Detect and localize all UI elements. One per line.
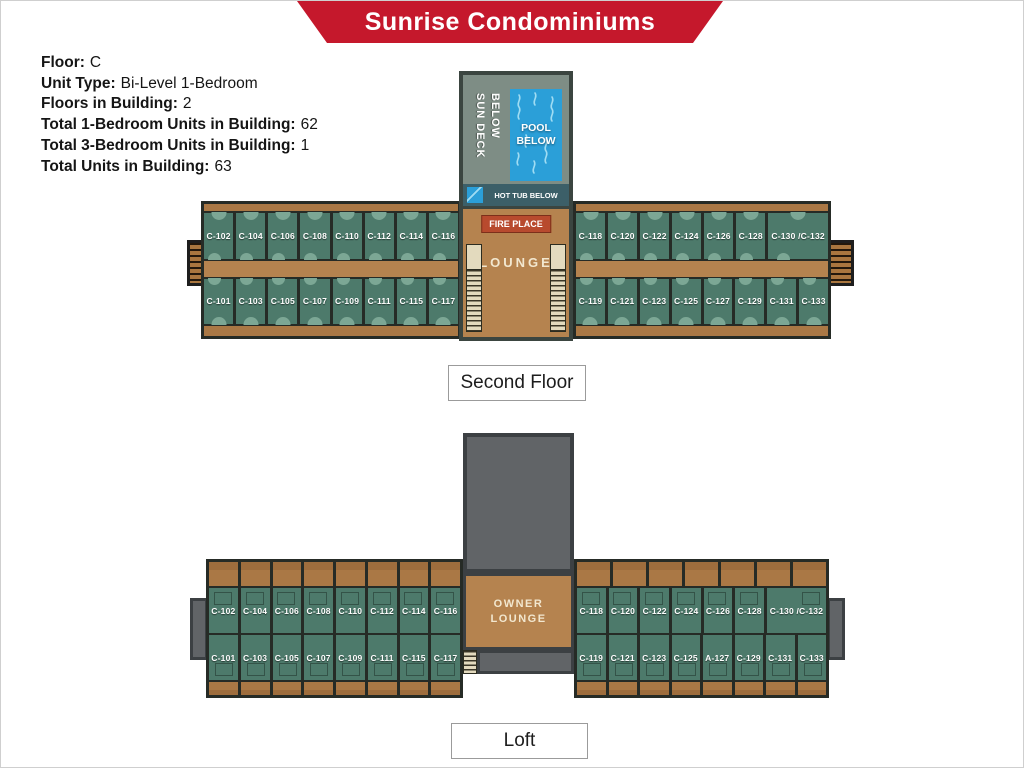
- unit-cell: C-120: [609, 588, 638, 633]
- unit-label: A-127: [705, 653, 729, 663]
- balcony-strip: [204, 204, 458, 211]
- info-label: Total 3-Bedroom Units in Building:: [41, 137, 296, 154]
- unit-cell: C-121: [609, 635, 638, 680]
- balcony-strip: [204, 326, 458, 336]
- unit-label: C-120: [611, 606, 635, 616]
- balcony-segment: [336, 562, 365, 586]
- balcony-segment: [609, 682, 638, 695]
- hot-tub-band: HOT TUB BELOW: [463, 184, 569, 206]
- unit-cell: C-110: [333, 213, 362, 259]
- unit-label: C-129: [737, 653, 761, 663]
- balcony-segment: [672, 682, 701, 695]
- unit-cell: C-112: [365, 213, 394, 259]
- unit-label: C-130 /C-132: [770, 606, 823, 616]
- info-line: Floors in Building:2: [41, 94, 318, 115]
- unit-label: C-106: [275, 606, 299, 616]
- unit-label: C-104: [239, 231, 263, 241]
- info-line: Total Units in Building:63: [41, 157, 318, 178]
- loft-left-bottom-balconies: [209, 682, 460, 695]
- corridor-right: [576, 261, 828, 277]
- info-value: 2: [183, 95, 192, 112]
- unit-label: C-129: [738, 296, 762, 306]
- unit-label: C-127: [706, 296, 730, 306]
- info-value: 1: [301, 137, 310, 154]
- unit-label: C-122: [643, 606, 667, 616]
- balcony-segment: [757, 562, 790, 586]
- balcony-segment: [241, 682, 270, 695]
- unit-cell: C-116: [429, 213, 458, 259]
- balcony-segment: [273, 682, 302, 695]
- unit-label: C-111: [371, 653, 394, 663]
- loft-center-tower: [463, 433, 574, 573]
- loft-left-top-row: C-102 C-104 C-106 C-108 C-110 C-112 C-11…: [209, 588, 460, 633]
- unit-cell: C-102: [204, 213, 233, 259]
- unit-label: C-123: [642, 296, 666, 306]
- unit-cell: C-129: [735, 635, 764, 680]
- balcony-segment: [400, 682, 429, 695]
- loft-left-bottom-row: C-101 C-103 C-105 C-107 C-109 C-111 C-11…: [209, 635, 460, 680]
- unit-cell: C-101: [209, 635, 238, 680]
- stairs-icon: [828, 240, 854, 286]
- balcony-segment: [431, 682, 460, 695]
- pool-label: POOL BELOW: [510, 89, 562, 181]
- unit-cell: C-119: [577, 635, 606, 680]
- stair-landing: [550, 244, 566, 269]
- unit-cell: C-130 /C-132: [768, 213, 828, 259]
- balcony-segment: [368, 682, 397, 695]
- unit-label: C-110: [339, 606, 363, 616]
- unit-label: C-107: [307, 653, 331, 663]
- unit-label: C-101: [206, 296, 230, 306]
- unit-label: C-116: [432, 231, 456, 241]
- unit-label: C-115: [402, 653, 426, 663]
- unit-label: C-109: [335, 296, 359, 306]
- loft-center-lower-block: [463, 650, 574, 674]
- fireplace-label: FIRE PLACE: [481, 215, 551, 233]
- unit-cell: C-115: [397, 279, 426, 325]
- info-label: Unit Type:: [41, 75, 116, 92]
- unit-label: C-123: [642, 653, 666, 663]
- unit-label: C-117: [432, 296, 456, 306]
- balcony-segment: [431, 562, 460, 586]
- unit-cell: C-122: [640, 213, 669, 259]
- unit-cell: C-101: [204, 279, 233, 325]
- lounge-area: FIRE PLACE LOUNGE: [463, 206, 569, 337]
- balcony-segment: [798, 682, 827, 695]
- stairs-icon: [550, 244, 566, 332]
- unit-cell: C-129: [735, 279, 764, 325]
- unit-cell: C-102: [209, 588, 238, 633]
- unit-label: C-128: [738, 606, 762, 616]
- unit-cell: A-127: [703, 635, 732, 680]
- unit-label: C-116: [434, 606, 458, 616]
- pool-area: POOL BELOW: [510, 89, 562, 181]
- loft-left-top-balconies: [209, 562, 460, 586]
- unit-cell: C-111: [365, 279, 394, 325]
- balcony-segment: [735, 682, 764, 695]
- unit-cell: C-109: [336, 635, 365, 680]
- unit-cell: C-103: [241, 635, 270, 680]
- unit-cell: C-106: [268, 213, 297, 259]
- unit-label: C-115: [399, 296, 423, 306]
- unit-cell: C-124: [672, 213, 701, 259]
- unit-label: C-103: [239, 296, 263, 306]
- second-floor-center-tower: SUN DECK BELOW POOL BELOW HOT TUB BELOW …: [459, 71, 573, 341]
- unit-cell: C-123: [640, 635, 669, 680]
- unit-cell: C-103: [236, 279, 265, 325]
- unit-label: C-121: [611, 653, 635, 663]
- loft-right-bottom-row: C-119 C-121 C-123 C-125 A-127 C-129 C-13…: [577, 635, 826, 680]
- roof-block: [477, 650, 574, 674]
- balcony-segment: [640, 682, 669, 695]
- info-value: 62: [301, 116, 318, 133]
- unit-cell: C-126: [704, 213, 733, 259]
- second-floor-tag-label: Second Floor: [460, 372, 573, 394]
- unit-cell: C-122: [640, 588, 669, 633]
- second-floor-right-wing: C-118 C-120 C-122 C-124 C-126 C-128 C-13…: [573, 201, 831, 339]
- unit-label: C-124: [674, 606, 698, 616]
- unit-label: C-118: [579, 231, 603, 241]
- balcony-segment: [685, 562, 718, 586]
- unit-label: C-126: [707, 231, 731, 241]
- title-banner: Sunrise Condominiums: [297, 1, 723, 43]
- info-label: Total 1-Bedroom Units in Building:: [41, 116, 296, 133]
- unit-label: C-111: [368, 296, 391, 306]
- unit-cell: C-118: [577, 588, 606, 633]
- balcony-segment: [273, 562, 302, 586]
- unit-label: C-112: [370, 606, 394, 616]
- info-value: 63: [214, 158, 231, 175]
- unit-cell: C-126: [704, 588, 733, 633]
- unit-cell: C-104: [241, 588, 270, 633]
- unit-cell: C-133: [798, 635, 827, 680]
- unit-label: C-133: [801, 296, 825, 306]
- unit-cell: C-130 /C-132: [767, 588, 826, 633]
- unit-label: C-128: [739, 231, 763, 241]
- balcony-segment: [703, 682, 732, 695]
- unit-label: C-110: [335, 231, 359, 241]
- unit-cell: C-117: [431, 635, 460, 680]
- balcony-strip: [576, 204, 828, 211]
- balcony-segment: [209, 562, 238, 586]
- unit-label: C-102: [206, 231, 230, 241]
- unit-cell: C-104: [236, 213, 265, 259]
- owner-lounge-area: OWNER LOUNGE: [463, 573, 574, 650]
- loft-right-top-row: C-118 C-120 C-122 C-124 C-126 C-128 C-13…: [577, 588, 826, 633]
- balcony-segment: [649, 562, 682, 586]
- balcony-segment: [793, 562, 826, 586]
- hot-tub-icon: [467, 187, 483, 203]
- unit-cell: C-105: [273, 635, 302, 680]
- unit-label: C-104: [243, 606, 267, 616]
- unit-cell: C-112: [368, 588, 397, 633]
- unit-cell: C-105: [268, 279, 297, 325]
- unit-label: C-112: [367, 231, 391, 241]
- unit-label: C-105: [275, 653, 299, 663]
- second-floor-left-top-row: C-102 C-104 C-106 C-108 C-110 C-112 C-11…: [204, 213, 458, 259]
- unit-label: C-105: [271, 296, 295, 306]
- loft-right-wing: C-118 C-120 C-122 C-124 C-126 C-128 C-13…: [574, 559, 829, 698]
- unit-label: C-108: [307, 606, 331, 616]
- unit-cell: C-110: [336, 588, 365, 633]
- unit-cell: C-111: [368, 635, 397, 680]
- unit-cell: C-119: [576, 279, 605, 325]
- stairs-icon: [466, 244, 482, 332]
- info-value: C: [90, 54, 101, 71]
- unit-label: C-117: [434, 653, 458, 663]
- unit-cell: C-109: [333, 279, 362, 325]
- balcony-segment: [304, 682, 333, 695]
- unit-label: C-126: [706, 606, 730, 616]
- unit-cell: C-125: [672, 279, 701, 325]
- corridor-left: [204, 261, 458, 277]
- unit-label: C-109: [338, 653, 362, 663]
- unit-label: C-124: [675, 231, 699, 241]
- second-floor-left-bottom-row: C-101 C-103 C-105 C-107 C-109 C-111 C-11…: [204, 279, 458, 325]
- unit-cell: C-124: [672, 588, 701, 633]
- info-label: Total Units in Building:: [41, 158, 209, 175]
- unit-cell: C-123: [640, 279, 669, 325]
- stair-treads: [466, 269, 482, 332]
- unit-label: C-125: [674, 653, 698, 663]
- balcony-segment: [721, 562, 754, 586]
- unit-label: C-108: [303, 231, 327, 241]
- unit-label: C-101: [211, 653, 235, 663]
- balcony-segment: [209, 682, 238, 695]
- unit-label: C-106: [271, 231, 295, 241]
- unit-label: C-131: [768, 653, 792, 663]
- loft-right-top-balconies: [577, 562, 826, 586]
- unit-label: C-120: [610, 231, 634, 241]
- unit-cell: C-115: [400, 635, 429, 680]
- balcony-segment: [400, 562, 429, 586]
- unit-label: C-121: [610, 296, 634, 306]
- info-label: Floor:: [41, 54, 85, 71]
- balcony-segment: [241, 562, 270, 586]
- balcony-segment: [613, 562, 646, 586]
- balcony-segment: [336, 682, 365, 695]
- balcony-segment: [766, 682, 795, 695]
- unit-cell: C-106: [273, 588, 302, 633]
- unit-cell: C-128: [735, 588, 764, 633]
- stairwell-block: [827, 598, 845, 660]
- unit-label: C-102: [211, 606, 235, 616]
- balcony-segment: [577, 562, 610, 586]
- unit-cell: C-117: [429, 279, 458, 325]
- unit-label: C-119: [579, 296, 603, 306]
- loft-tag: Loft: [451, 723, 588, 759]
- unit-cell: C-108: [300, 213, 329, 259]
- info-line: Floor:C: [41, 53, 318, 74]
- info-line: Total 1-Bedroom Units in Building:62: [41, 115, 318, 136]
- unit-label: C-118: [579, 606, 603, 616]
- unit-label: C-107: [303, 296, 327, 306]
- unit-cell: C-127: [704, 279, 733, 325]
- unit-cell: C-120: [608, 213, 637, 259]
- balcony-segment: [368, 562, 397, 586]
- unit-label: C-122: [643, 231, 667, 241]
- stairs-icon: [463, 650, 477, 674]
- loft-left-wing: C-102 C-104 C-106 C-108 C-110 C-112 C-11…: [206, 559, 463, 698]
- info-line: Total 3-Bedroom Units in Building:1: [41, 136, 318, 157]
- second-floor-tag: Second Floor: [448, 365, 586, 401]
- unit-cell: C-128: [736, 213, 765, 259]
- unit-cell: C-131: [766, 635, 795, 680]
- owner-lounge-label: OWNER LOUNGE: [479, 597, 559, 627]
- loft-right-bottom-balconies: [577, 682, 826, 695]
- second-floor-right-bottom-row: C-119 C-121 C-123 C-125 C-127 C-129 C-13…: [576, 279, 828, 325]
- balcony-strip: [576, 326, 828, 336]
- unit-label: C-114: [402, 606, 426, 616]
- unit-cell: C-114: [397, 213, 426, 259]
- unit-cell: C-107: [304, 635, 333, 680]
- balcony-segment: [304, 562, 333, 586]
- unit-cell: C-118: [576, 213, 605, 259]
- unit-cell: C-116: [431, 588, 460, 633]
- unit-cell: C-131: [767, 279, 796, 325]
- unit-label: C-119: [579, 653, 603, 663]
- hot-tub-label: HOT TUB BELOW: [483, 191, 569, 200]
- unit-cell: C-133: [799, 279, 828, 325]
- stair-landing: [466, 244, 482, 269]
- unit-label: C-133: [800, 653, 824, 663]
- balcony-segment: [577, 682, 606, 695]
- unit-label: C-130 /C-132: [771, 231, 824, 241]
- info-value: Bi-Level 1-Bedroom: [121, 75, 258, 92]
- unit-cell: C-125: [672, 635, 701, 680]
- unit-label: C-131: [770, 296, 794, 306]
- sun-deck-label: SUN DECK BELOW: [472, 93, 502, 181]
- unit-cell: C-107: [300, 279, 329, 325]
- second-floor-right-top-row: C-118 C-120 C-122 C-124 C-126 C-128 C-13…: [576, 213, 828, 259]
- unit-cell: C-121: [608, 279, 637, 325]
- stair-treads: [550, 269, 566, 332]
- page-title: Sunrise Condominiums: [365, 8, 656, 37]
- floorplan-page: Sunrise Condominiums Floor:C Unit Type:B…: [0, 0, 1024, 768]
- second-floor-left-wing: C-102 C-104 C-106 C-108 C-110 C-112 C-11…: [201, 201, 461, 339]
- unit-label: C-125: [674, 296, 698, 306]
- unit-label: C-114: [399, 231, 423, 241]
- building-info: Floor:C Unit Type:Bi-Level 1-Bedroom Flo…: [41, 53, 318, 177]
- unit-label: C-103: [243, 653, 267, 663]
- unit-cell: C-114: [400, 588, 429, 633]
- info-label: Floors in Building:: [41, 95, 178, 112]
- loft-tag-label: Loft: [504, 730, 536, 752]
- info-line: Unit Type:Bi-Level 1-Bedroom: [41, 74, 318, 95]
- unit-cell: C-108: [304, 588, 333, 633]
